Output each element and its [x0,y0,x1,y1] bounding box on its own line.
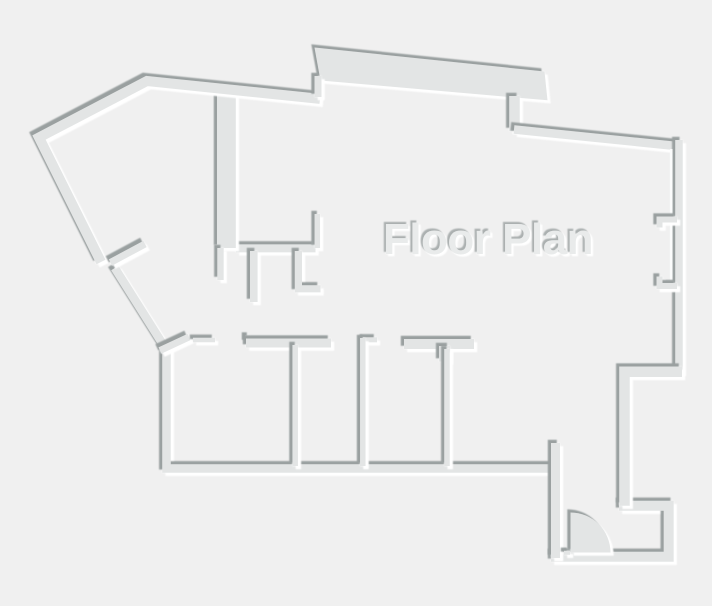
svg-text:Floor Plan: Floor Plan [383,215,593,264]
